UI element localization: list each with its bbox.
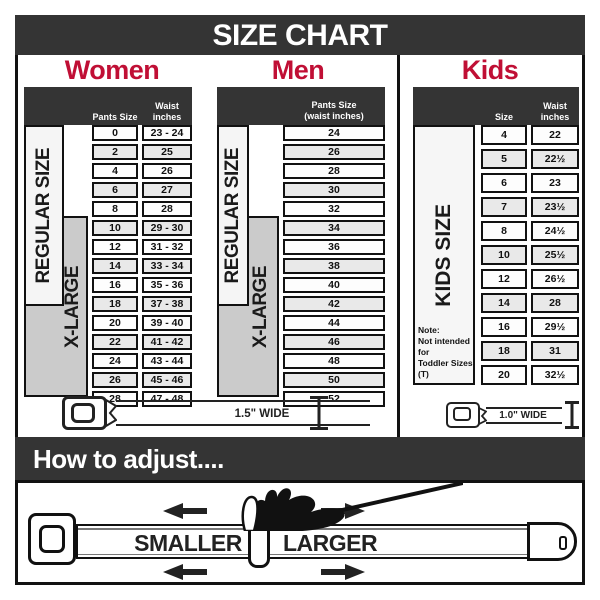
waist-cell: 29 - 30 <box>142 220 192 236</box>
kids-belt-illustration: 1.0" WIDE <box>446 399 582 431</box>
waist-size-cell: 46 <box>283 334 385 350</box>
how-to-adjust-illustration: SMALLER LARGER <box>15 480 585 585</box>
men-table-header: Pants Size(waist inches) <box>217 87 385 125</box>
waist-cell: 39 - 40 <box>142 315 192 331</box>
table-row: 18 37 - 38 <box>92 296 192 312</box>
women-regular-box: REGULAR SIZE <box>24 125 64 306</box>
waist-size-cell: 28 <box>283 163 385 179</box>
table-row: 5 22½ <box>481 149 579 169</box>
table-row: 36 <box>283 239 385 255</box>
seatbelt-buckle-icon <box>28 513 76 565</box>
waist-size-cell: 48 <box>283 353 385 369</box>
waist-cell: 31 - 32 <box>142 239 192 255</box>
waist-cell: 28 <box>531 293 579 313</box>
table-row: 16 35 - 36 <box>92 277 192 293</box>
kid-size-cell: 5 <box>481 149 527 169</box>
men-heading: Men <box>210 55 386 85</box>
waist-cell: 25½ <box>531 245 579 265</box>
table-row: 46 <box>283 334 385 350</box>
table-row: 28 <box>283 163 385 179</box>
seatbelt-buckle-icon <box>446 402 480 428</box>
table-row: 14 28 <box>481 293 579 313</box>
women-xlarge-label: X-LARGE <box>62 266 84 348</box>
waist-cell: 35 - 36 <box>142 277 192 293</box>
waist-size-cell: 36 <box>283 239 385 255</box>
width-marker-icon <box>310 396 328 430</box>
arrow-left-icon <box>163 564 207 580</box>
arrow-right-icon <box>321 564 365 580</box>
pants-size-cell: 14 <box>92 258 138 274</box>
table-row: 32 <box>283 201 385 217</box>
table-row: 6 27 <box>92 182 192 198</box>
men-regular-box: REGULAR SIZE <box>217 125 249 306</box>
pants-size-cell: 24 <box>92 353 138 369</box>
pants-size-cell: 10 <box>92 220 138 236</box>
womens-mens-belt-illustration: 1.5" WIDE <box>62 395 372 433</box>
kids-heading: Kids <box>400 55 580 85</box>
table-row: 4 22 <box>481 125 579 145</box>
seatbelt-buckle-icon <box>62 396 107 430</box>
pants-size-cell: 16 <box>92 277 138 293</box>
table-row: 34 <box>283 220 385 236</box>
width-marker-icon <box>565 401 579 429</box>
table-row: 24 <box>283 125 385 141</box>
pants-size-cell: 18 <box>92 296 138 312</box>
pants-size-cell: 22 <box>92 334 138 350</box>
waist-cell: 24½ <box>531 221 579 241</box>
table-row: 22 41 - 42 <box>92 334 192 350</box>
waist-cell: 31 <box>531 341 579 361</box>
pants-size-cell: 0 <box>92 125 138 141</box>
how-to-adjust-heading: How to adjust.... <box>15 437 585 480</box>
waist-size-cell: 24 <box>283 125 385 141</box>
size-chart-body: Women Men Kids Pants Size Waist inches X… <box>15 55 585 437</box>
table-row: 20 32½ <box>481 365 579 385</box>
table-row: 44 <box>283 315 385 331</box>
table-row: 42 <box>283 296 385 312</box>
pants-size-cell: 4 <box>92 163 138 179</box>
table-row: 12 31 - 32 <box>92 239 192 255</box>
waist-cell: 45 - 46 <box>142 372 192 388</box>
kid-size-cell: 8 <box>481 221 527 241</box>
kids-table-header: Size Waist inches <box>413 87 579 125</box>
belt-tip <box>527 522 577 561</box>
waist-size-cell: 44 <box>283 315 385 331</box>
belt-width-label: 1.5" WIDE <box>212 395 312 433</box>
table-row: 0 23 - 24 <box>92 125 192 141</box>
women-heading: Women <box>18 55 206 85</box>
table-row: 26 <box>283 144 385 160</box>
belt-tip-slot <box>559 536 567 550</box>
waist-size-cell: 42 <box>283 296 385 312</box>
waist-cell: 43 - 44 <box>142 353 192 369</box>
larger-label: LARGER <box>260 530 400 557</box>
table-row: 24 43 - 44 <box>92 353 192 369</box>
men-regular-label: REGULAR SIZE <box>222 148 244 283</box>
table-row: 48 <box>283 353 385 369</box>
waist-cell: 23 - 24 <box>142 125 192 141</box>
table-row: 8 28 <box>92 201 192 217</box>
waist-cell: 25 <box>142 144 192 160</box>
pants-size-cell: 12 <box>92 239 138 255</box>
table-row: 12 26½ <box>481 269 579 289</box>
waist-cell: 22½ <box>531 149 579 169</box>
table-row: 18 31 <box>481 341 579 361</box>
women-rows: 0 23 - 24 2 25 4 26 6 27 <box>92 125 192 397</box>
kid-size-cell: 20 <box>481 365 527 385</box>
waist-cell: 41 - 42 <box>142 334 192 350</box>
table-row: 8 24½ <box>481 221 579 241</box>
kid-size-cell: 7 <box>481 197 527 217</box>
table-row: 40 <box>283 277 385 293</box>
waist-cell: 27 <box>142 182 192 198</box>
waist-cell: 23 <box>531 173 579 193</box>
waist-size-cell: 40 <box>283 277 385 293</box>
table-row: 16 29½ <box>481 317 579 337</box>
arrow-left-icon <box>163 503 207 519</box>
kids-size-table: Size Waist inches KIDS SIZE Note: Not in… <box>413 87 579 385</box>
waist-cell: 26 <box>142 163 192 179</box>
hand-pinching-icon <box>221 481 463 531</box>
men-pants-size-header: Pants Size(waist inches) <box>283 100 385 121</box>
kids-size-label: KIDS SIZE <box>432 204 456 307</box>
kids-label-area: KIDS SIZE Note: Not intended for Toddler… <box>413 125 475 385</box>
waist-cell: 23½ <box>531 197 579 217</box>
size-chart-title: SIZE CHART <box>15 15 585 55</box>
table-row: 26 45 - 46 <box>92 372 192 388</box>
table-row: 6 23 <box>481 173 579 193</box>
kids-note: Note: Not intended for Toddler Sizes (T) <box>418 325 473 380</box>
women-table-header: Pants Size Waist inches <box>24 87 192 125</box>
pants-size-cell: 6 <box>92 182 138 198</box>
kid-size-cell: 6 <box>481 173 527 193</box>
pants-size-cell: 20 <box>92 315 138 331</box>
men-rows: 24 26 28 30 32 34 <box>283 125 385 397</box>
kid-size-cell: 16 <box>481 317 527 337</box>
kid-size-cell: 18 <box>481 341 527 361</box>
men-size-table: Pants Size(waist inches) X-LARGE REGULAR… <box>217 87 385 397</box>
kids-waist-header: Waist inches <box>531 101 579 122</box>
table-row: 7 23½ <box>481 197 579 217</box>
table-row: 2 25 <box>92 144 192 160</box>
waist-size-cell: 38 <box>283 258 385 274</box>
waist-size-cell: 30 <box>283 182 385 198</box>
table-row: 10 29 - 30 <box>92 220 192 236</box>
waist-size-cell: 26 <box>283 144 385 160</box>
kid-size-cell: 10 <box>481 245 527 265</box>
kids-section-divider <box>397 55 400 437</box>
buckle-opening <box>39 525 65 553</box>
kid-size-cell: 14 <box>481 293 527 313</box>
waist-size-cell: 32 <box>283 201 385 217</box>
women-regular-label: REGULAR SIZE <box>33 148 55 283</box>
women-waist-header: Waist inches <box>142 101 192 122</box>
table-row: 30 <box>283 182 385 198</box>
pants-size-cell: 26 <box>92 372 138 388</box>
kids-rows: 4 22 5 22½ 6 23 7 23½ <box>481 125 579 385</box>
table-row: 20 39 - 40 <box>92 315 192 331</box>
table-row: 10 25½ <box>481 245 579 265</box>
waist-size-cell: 34 <box>283 220 385 236</box>
men-label-area: X-LARGE REGULAR SIZE <box>217 125 279 397</box>
table-row: 4 26 <box>92 163 192 179</box>
kid-size-cell: 12 <box>481 269 527 289</box>
kid-size-cell: 4 <box>481 125 527 145</box>
buckle-opening <box>453 407 471 421</box>
pants-size-cell: 8 <box>92 201 138 217</box>
pants-size-cell: 2 <box>92 144 138 160</box>
waist-cell: 26½ <box>531 269 579 289</box>
women-pants-size-header: Pants Size <box>92 112 138 122</box>
kids-size-header: Size <box>481 112 527 122</box>
table-row: 14 33 - 34 <box>92 258 192 274</box>
women-label-area: X-LARGE REGULAR SIZE <box>24 125 88 397</box>
men-xlarge-label: X-LARGE <box>250 266 272 348</box>
waist-cell: 28 <box>142 201 192 217</box>
smaller-label: SMALLER <box>118 530 258 557</box>
table-row: 38 <box>283 258 385 274</box>
waist-cell: 29½ <box>531 317 579 337</box>
waist-cell: 37 - 38 <box>142 296 192 312</box>
belt-width-label: 1.0" WIDE <box>484 399 562 431</box>
waist-cell: 32½ <box>531 365 579 385</box>
waist-size-cell: 50 <box>283 372 385 388</box>
buckle-opening <box>71 403 95 423</box>
table-row: 50 <box>283 372 385 388</box>
women-size-table: Pants Size Waist inches X-LARGE REGULAR … <box>24 87 192 397</box>
waist-cell: 22 <box>531 125 579 145</box>
waist-cell: 33 - 34 <box>142 258 192 274</box>
